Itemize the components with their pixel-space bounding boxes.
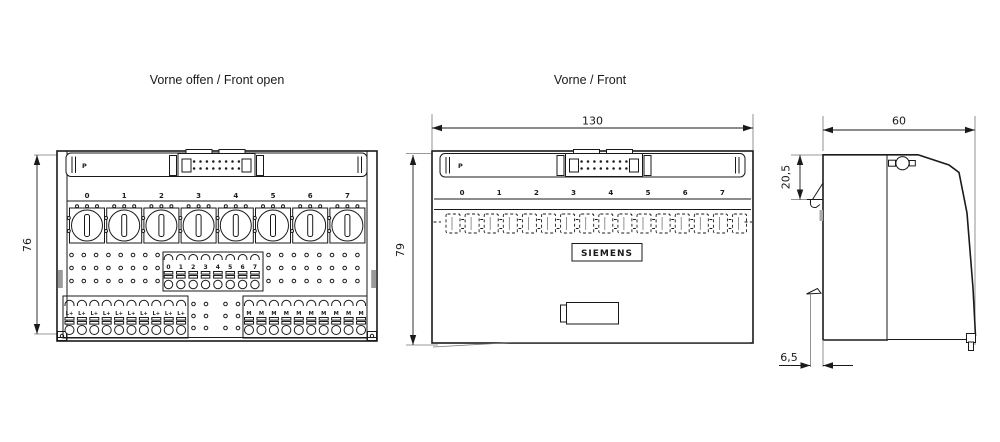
pin-hole [133, 205, 136, 208]
pin-hole [142, 217, 145, 220]
view-front: Vorne / Front 130 79 P 01234567 [394, 73, 753, 347]
connector-pin [619, 160, 622, 163]
pin-hole [170, 205, 173, 208]
terminal-screw [251, 280, 259, 288]
connector-pin [231, 160, 234, 163]
terminal-test-hole [204, 302, 208, 306]
channel-number: 0 [460, 189, 465, 197]
pin-hole [160, 205, 163, 208]
pin-hole [346, 205, 349, 208]
channel-number: 7 [720, 189, 725, 197]
terminal-screw [164, 326, 173, 335]
terminal-screw [257, 326, 266, 335]
terminal-clamp [257, 322, 266, 325]
terminal-test-hole [131, 279, 135, 283]
terminal-test-hole [224, 326, 228, 330]
connector-pin [212, 167, 215, 170]
relay-slot [233, 215, 238, 237]
terminal-screw [214, 280, 222, 288]
terminal-label: M [259, 311, 264, 317]
terminal-screw [332, 326, 341, 335]
terminal-test-hole [305, 279, 309, 283]
terminal-test-hole [82, 279, 86, 283]
pin-hole [319, 205, 322, 208]
terminal-test-hole [318, 266, 322, 270]
terminal-screw [226, 280, 234, 288]
dimension-label-height: 76 [21, 238, 34, 252]
connector-pin [580, 167, 583, 170]
terminal-screw [90, 326, 99, 335]
terminal-label: M [246, 311, 251, 317]
brand-label: SIEMENS [581, 249, 633, 259]
rail-shade [371, 270, 376, 288]
terminal-label: L+ [140, 311, 148, 317]
pin-hole [142, 230, 145, 233]
channel-number: 6 [683, 189, 688, 197]
terminal-test-hole [292, 279, 296, 283]
terminal-clamp [127, 318, 136, 321]
pin-hole [253, 217, 256, 220]
terminal-test-hole [107, 279, 111, 283]
connector-pin [612, 160, 615, 163]
pin-hole [216, 230, 219, 233]
channel-number: 6 [308, 192, 313, 200]
channel-number: 2 [534, 189, 539, 197]
terminal-test-hole [318, 279, 322, 283]
terminal-clamp [319, 318, 328, 321]
connector-latch [182, 159, 191, 172]
terminal-screw [307, 326, 316, 335]
channel-number: 4 [233, 192, 238, 200]
terminal-label: M [358, 311, 363, 317]
rail-shade [58, 270, 63, 288]
terminal-test-hole [267, 253, 271, 257]
terminal-screw [102, 326, 111, 335]
dimension-label-depth: 60 [892, 115, 906, 128]
terminal-screw [189, 280, 197, 288]
terminal-test-hole [144, 266, 148, 270]
channel-number: 5 [271, 192, 276, 200]
connector-pin [619, 167, 622, 170]
terminal-screw [127, 326, 136, 335]
terminal-clamp [214, 272, 223, 275]
terminal-test-hole [82, 266, 86, 270]
terminal-test-hole [144, 253, 148, 257]
terminal-test-hole [204, 314, 208, 318]
terminal-clamp [177, 276, 186, 279]
dimension-label-width: 130 [582, 115, 603, 128]
relay-socket-row [67, 205, 365, 243]
dimension-label-top-offset: 20,5 [780, 165, 793, 190]
view-title-front: Vorne / Front [554, 73, 627, 87]
connector-pin [193, 160, 196, 163]
connector-notch [607, 150, 633, 154]
terminal-test-hole [330, 266, 334, 270]
terminal-test-hole [343, 266, 347, 270]
connector-bracket [557, 156, 564, 176]
connector-pin [225, 167, 228, 170]
relay-slot [85, 215, 90, 237]
connector-pin [587, 167, 590, 170]
terminal-test-hole [204, 326, 208, 330]
channel-number: 7 [345, 192, 350, 200]
terminal-clamp [189, 276, 198, 279]
terminal-clamp [102, 318, 111, 321]
terminal-test-hole [94, 253, 98, 257]
terminal-clamp [90, 318, 99, 321]
terminal-clamp [115, 322, 124, 325]
pin-hole [67, 217, 70, 220]
connector-pin [199, 160, 202, 163]
terminal-clamp [65, 322, 74, 325]
terminal-test-hole [236, 326, 240, 330]
pin-hole [328, 217, 331, 220]
terminal-clamp [226, 276, 235, 279]
terminal-screw [344, 326, 353, 335]
terminal-test-hole [131, 253, 135, 257]
terminal-clamp [139, 322, 148, 325]
pin-hole [309, 205, 312, 208]
connector-latch [570, 159, 579, 172]
terminal-clamp [257, 318, 266, 321]
terminal-clamp [282, 318, 291, 321]
pin-hole [187, 205, 190, 208]
terminal-clamp [226, 272, 235, 275]
terminal-clamp [251, 272, 260, 275]
terminal-label: L+ [165, 311, 173, 317]
terminal-test-hole [119, 279, 123, 283]
terminal-test-hole [131, 266, 135, 270]
terminal-test-hole [305, 253, 309, 257]
terminal-test-hole [156, 266, 160, 270]
terminal-screw [269, 326, 278, 335]
rear-foot-tip [969, 342, 974, 351]
channel-number: 1 [122, 192, 127, 200]
terminal-clamp [152, 322, 161, 325]
terminal-label: M [284, 311, 289, 317]
connector-pin [231, 167, 234, 170]
terminal-test-hole [343, 279, 347, 283]
terminal-clamp [115, 318, 124, 321]
terminal-screw [201, 280, 209, 288]
channel-number: 4 [608, 189, 613, 197]
terminal-test-hole [318, 253, 322, 257]
terminal-test-hole [236, 314, 240, 318]
channel-number: 0 [85, 192, 90, 200]
terminal-screw [357, 326, 366, 335]
terminal-test-hole [156, 253, 160, 257]
terminal-test-hole [292, 253, 296, 257]
terminal-clamp [344, 322, 353, 325]
connector-pin [606, 167, 609, 170]
terminal-label: L+ [152, 311, 160, 317]
connector-pin [593, 167, 596, 170]
terminal-clamp [245, 318, 254, 321]
relay-slot [159, 215, 164, 237]
terminal-clamp [269, 318, 278, 321]
terminal-clamp [201, 272, 210, 275]
technical-drawing-canvas: Vorne offen / Front open 76 P [0, 0, 1000, 442]
pin-hole [123, 205, 126, 208]
pin-hole [356, 205, 359, 208]
connector-pin [206, 160, 209, 163]
pin-hole [96, 205, 99, 208]
terminal-label: L+ [115, 311, 123, 317]
connector-pin [612, 167, 615, 170]
connector-notch [574, 150, 600, 154]
terminal-test-hole [70, 279, 74, 283]
terminal-test-hole [94, 266, 98, 270]
terminal-clamp [269, 322, 278, 325]
connector-pin [593, 160, 596, 163]
terminal-test-hole [192, 314, 196, 318]
terminal-screw [177, 280, 185, 288]
terminal-clamp [238, 276, 247, 279]
connector-pin [206, 167, 209, 170]
terminal-clamp [201, 276, 210, 279]
dimension-label-bottom-offset: 6,5 [780, 351, 798, 364]
terminal-label: 3 [203, 264, 207, 271]
relay-slot [345, 215, 350, 237]
terminal-screw [238, 280, 246, 288]
terminal-test-hole [224, 302, 228, 306]
bottom-latch [807, 289, 822, 295]
hook-slope [813, 183, 824, 200]
connector-pin [225, 160, 228, 163]
pin-hole [234, 205, 237, 208]
terminal-label: M [271, 311, 276, 317]
terminal-clamp [251, 276, 260, 279]
pin-hole [272, 205, 275, 208]
pin-hole [244, 205, 247, 208]
terminal-label: 5 [228, 264, 232, 271]
channel-number: 3 [196, 192, 201, 200]
terminal-screw [164, 280, 172, 288]
terminal-clamp [307, 322, 316, 325]
pin-hole [197, 205, 200, 208]
terminal-label: M [346, 311, 351, 317]
terminal-label: 1 [179, 264, 183, 271]
terminal-clamp [102, 322, 111, 325]
technical-drawing: Vorne offen / Front open 76 P [0, 0, 1000, 442]
terminal-screw [282, 326, 291, 335]
terminal-clamp [282, 322, 291, 325]
terminal-clamp [307, 318, 316, 321]
terminal-clamp [152, 318, 161, 321]
terminal-screw [294, 326, 303, 335]
pin-hole [105, 217, 108, 220]
connector-pin [218, 167, 221, 170]
terminal-clamp [344, 318, 353, 321]
terminal-clamp [65, 318, 74, 321]
connector-pin [238, 160, 241, 163]
view-title-front-open: Vorne offen / Front open [150, 73, 285, 87]
terminal-test-hole [267, 266, 271, 270]
terminal-clamp [294, 318, 303, 321]
terminal-screw [65, 326, 74, 335]
connector-pin [600, 167, 603, 170]
terminal-test-hole [343, 253, 347, 257]
p-label: P [458, 162, 463, 170]
terminal-clamp [245, 322, 254, 325]
terminal-test-hole [236, 302, 240, 306]
pin-hole [179, 217, 182, 220]
connector-bracket [257, 156, 264, 176]
relay-slot [196, 215, 201, 237]
connector-notch [186, 150, 212, 154]
terminal-label: L+ [103, 311, 111, 317]
pin-hole [67, 230, 70, 233]
terminal-test-hole [292, 266, 296, 270]
terminal-clamp [139, 318, 148, 321]
dimension-label-height: 79 [394, 243, 407, 257]
terminal-clamp [332, 322, 341, 325]
terminal-test-hole [70, 253, 74, 257]
terminal-test-hole [107, 253, 111, 257]
pin-hole [282, 205, 285, 208]
pin-hole [299, 205, 302, 208]
terminal-label: 6 [241, 264, 245, 271]
pin-hole [291, 230, 294, 233]
p-label: P [82, 162, 87, 170]
terminal-clamp [164, 276, 173, 279]
terminal-test-hole [279, 266, 283, 270]
connector-pin [587, 160, 590, 163]
pin-hole [179, 230, 182, 233]
pin-hole [336, 205, 339, 208]
connector-latch [242, 159, 251, 172]
connector-notch [219, 150, 245, 154]
pin-hole [224, 205, 227, 208]
terminal-clamp [214, 276, 223, 279]
connector-bracket [644, 156, 651, 176]
terminal-test-hole [330, 279, 334, 283]
terminal-screw [77, 326, 86, 335]
terminal-clamp [238, 272, 247, 275]
pin-hole [216, 217, 219, 220]
pin-hole [150, 205, 153, 208]
terminal-clamp [164, 318, 173, 321]
side-rear-slope [918, 155, 976, 336]
terminal-label: L+ [78, 311, 86, 317]
terminal-label: M [296, 311, 301, 317]
pin-hole [207, 205, 210, 208]
relay-slot [271, 215, 276, 237]
terminal-test-hole [279, 279, 283, 283]
terminal-clamp [164, 272, 173, 275]
terminal-test-hole [356, 253, 360, 257]
terminal-test-hole [192, 302, 196, 306]
terminal-clamp [177, 272, 186, 275]
connector-pin [218, 160, 221, 163]
terminal-test-hole [330, 253, 334, 257]
terminal-clamp [77, 322, 86, 325]
view-side: 60 20,5 6,5 [779, 115, 976, 368]
terminal-clamp [189, 272, 198, 275]
terminal-clamp [294, 322, 303, 325]
terminal-screw [139, 326, 148, 335]
terminal-label: 4 [216, 264, 220, 271]
channel-number: 3 [571, 189, 576, 197]
terminal-label: 2 [191, 264, 195, 271]
terminal-clamp [177, 318, 186, 321]
terminal-clamp [319, 322, 328, 325]
terminal-label: L+ [177, 311, 185, 317]
terminal-test-hole [107, 266, 111, 270]
terminal-test-hole [356, 266, 360, 270]
screw-tab [909, 161, 915, 166]
terminal-screw [115, 326, 124, 335]
terminal-screw [177, 326, 186, 335]
connector-bracket [170, 156, 177, 176]
pin-hole [113, 205, 116, 208]
terminal-test-hole [119, 253, 123, 257]
terminal-label: L+ [90, 311, 98, 317]
connector-pin [600, 160, 603, 163]
connector-pin [606, 160, 609, 163]
rear-foot [967, 334, 976, 343]
terminal-test-hole [144, 279, 148, 283]
relay-slot [122, 215, 127, 237]
terminal-label: M [309, 311, 314, 317]
terminal-test-hole [94, 279, 98, 283]
terminal-label: 0 [166, 264, 170, 271]
terminal-clamp [90, 322, 99, 325]
hook-shade [820, 210, 824, 221]
terminal-label: M [321, 311, 326, 317]
pin-hole [262, 205, 265, 208]
terminal-test-hole [119, 266, 123, 270]
pin-hole [253, 230, 256, 233]
pin-hole [328, 230, 331, 233]
terminal-test-hole [305, 266, 309, 270]
channel-number: 1 [497, 189, 502, 197]
connector-pin [238, 167, 241, 170]
connector-pin [193, 167, 196, 170]
terminal-test-hole [192, 326, 196, 330]
pin-hole [105, 230, 108, 233]
terminal-test-hole [279, 253, 283, 257]
pin-hole [291, 217, 294, 220]
terminal-test-hole [356, 279, 360, 283]
connector-pin [212, 160, 215, 163]
terminal-label: L+ [66, 311, 74, 317]
hook-curve [811, 200, 821, 208]
terminal-label: 7 [253, 264, 257, 271]
screw-head [896, 157, 909, 170]
connector-pin [625, 160, 628, 163]
pin-hole [76, 205, 79, 208]
terminal-clamp [332, 318, 341, 321]
connector-pin [580, 160, 583, 163]
label-holder [567, 303, 619, 325]
channel-number: 2 [159, 192, 164, 200]
relay-slot [308, 215, 313, 237]
screw-tab [889, 160, 896, 166]
connector-pin [199, 167, 202, 170]
label-holder-tab [561, 305, 567, 322]
terminal-clamp [164, 322, 173, 325]
terminal-clamp [77, 318, 86, 321]
terminal-clamp [177, 322, 186, 325]
connector-latch [630, 159, 639, 172]
terminal-screw [245, 326, 254, 335]
terminal-test-hole [224, 314, 228, 318]
terminal-test-hole [82, 253, 86, 257]
terminal-clamp [357, 318, 366, 321]
terminal-clamp [127, 322, 136, 325]
terminal-screw [319, 326, 328, 335]
